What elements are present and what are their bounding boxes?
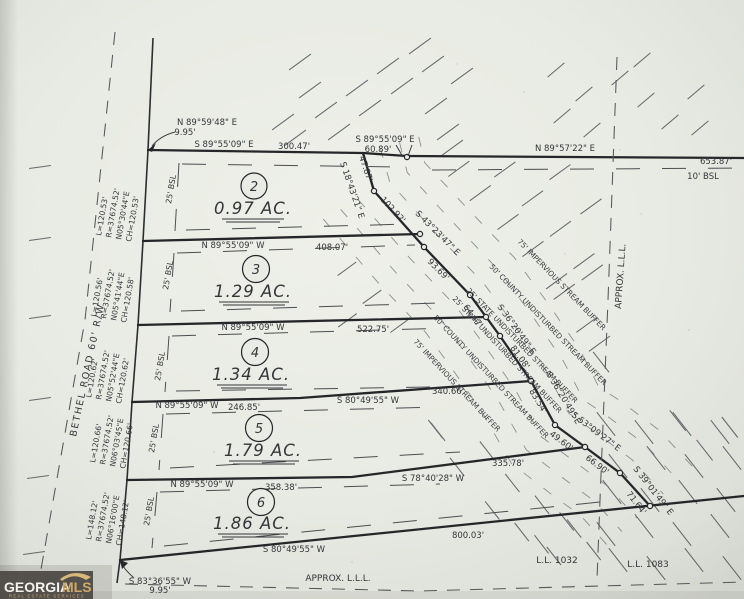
lot-3-number: 3: [252, 263, 260, 278]
lot-2-front-distance: 300.47': [278, 142, 310, 152]
tie-south-distance-label: 9.95': [149, 586, 170, 596]
land-lot-1083-label: L.L. 1083: [627, 560, 669, 570]
lot-3-acreage: 1.29 AC.: [214, 282, 292, 301]
georgia-mls-watermark: GEORGIA MLS REAL ESTATE SERVICES: [0, 565, 112, 599]
lot-5-north-bearing2: S 80°49'55" W: [337, 396, 400, 406]
north-distance-label: 653.87': [700, 157, 732, 167]
lot-3-north-bearing: N 89°55'09" W: [201, 241, 265, 251]
bsl10-label: 10' BSL: [687, 172, 719, 182]
lot-4-number: 4: [251, 346, 259, 361]
lot-6-north-bearing2: S 78°40'28" W: [402, 474, 465, 484]
lot-6-acreage: 1.86 AC.: [213, 514, 291, 533]
lot-6-number: 6: [257, 496, 265, 511]
lot-4-north-bearing: N 89°55'09" W: [221, 323, 285, 333]
tie-east-distance-label: 60.89': [365, 145, 392, 155]
plat-survey-map: BETHEL ROAD 60' R/W 10' BSL APPROX. L.L.…: [0, 0, 744, 599]
photo-edge-shadow-left: [0, 0, 18, 599]
lot-5-north-bearing: N 89°55'09" W: [155, 401, 219, 411]
lot-3-north-distance: 408.07': [316, 243, 348, 253]
south-bearing-label: S 80°49'55" W: [263, 545, 326, 555]
lot-6-north-distance2: 335.78': [492, 459, 524, 469]
lot-4-acreage: 1.34 AC.: [212, 365, 290, 384]
lot-2-number: 2: [250, 180, 258, 195]
tie-north-bearing-label: N 89°59'48" E: [177, 118, 237, 128]
lot-2-acreage: 0.97 AC.: [214, 199, 292, 218]
land-lot-1032-label: L.L. 1032: [536, 556, 578, 566]
logo-tagline-text: REAL ESTATE SERVICES: [9, 594, 85, 599]
approx-lll-bottom-label: APPROX. L.L.L.: [305, 574, 370, 584]
lot-5-acreage: 1.79 AC.: [224, 441, 302, 460]
lot-5-number: 5: [255, 422, 263, 437]
south-distance-label: 800.03': [452, 531, 484, 541]
lot-5-north-distance: 246.85': [228, 403, 260, 413]
lot-2-front-bearing: S 89°55'09" E: [194, 140, 253, 150]
lot-6-north-bearing: N 89°55'09" W: [170, 480, 234, 490]
lot-4-north-distance: 522.75': [357, 325, 389, 335]
tie-north-distance-label: 9.95': [174, 128, 195, 138]
tie-east-bearing-label: S 89°55'09" E: [355, 135, 414, 145]
north-bearing-label: N 89°57'22" E: [535, 144, 595, 154]
